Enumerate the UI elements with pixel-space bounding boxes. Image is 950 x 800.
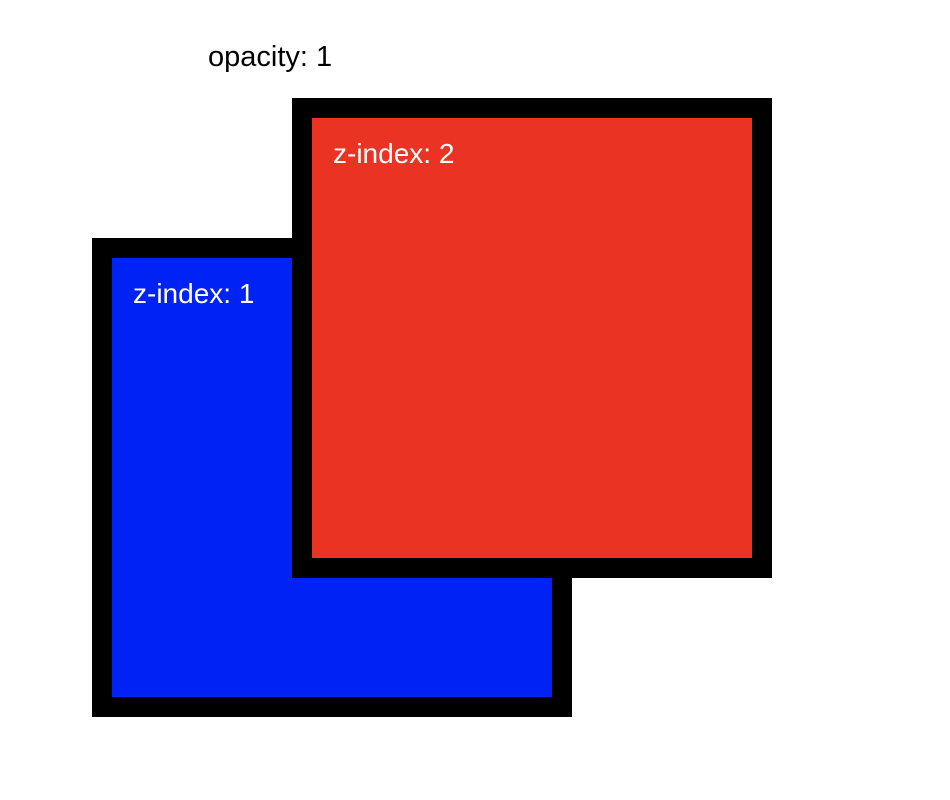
blue-square-label: z-index: 1 xyxy=(133,279,254,310)
red-square: z-index: 2 xyxy=(292,98,772,578)
demo-canvas: opacity: 1 z-index: 1 z-index: 2 xyxy=(0,0,950,800)
red-square-label: z-index: 2 xyxy=(333,139,454,170)
opacity-label: opacity: 1 xyxy=(208,42,332,74)
